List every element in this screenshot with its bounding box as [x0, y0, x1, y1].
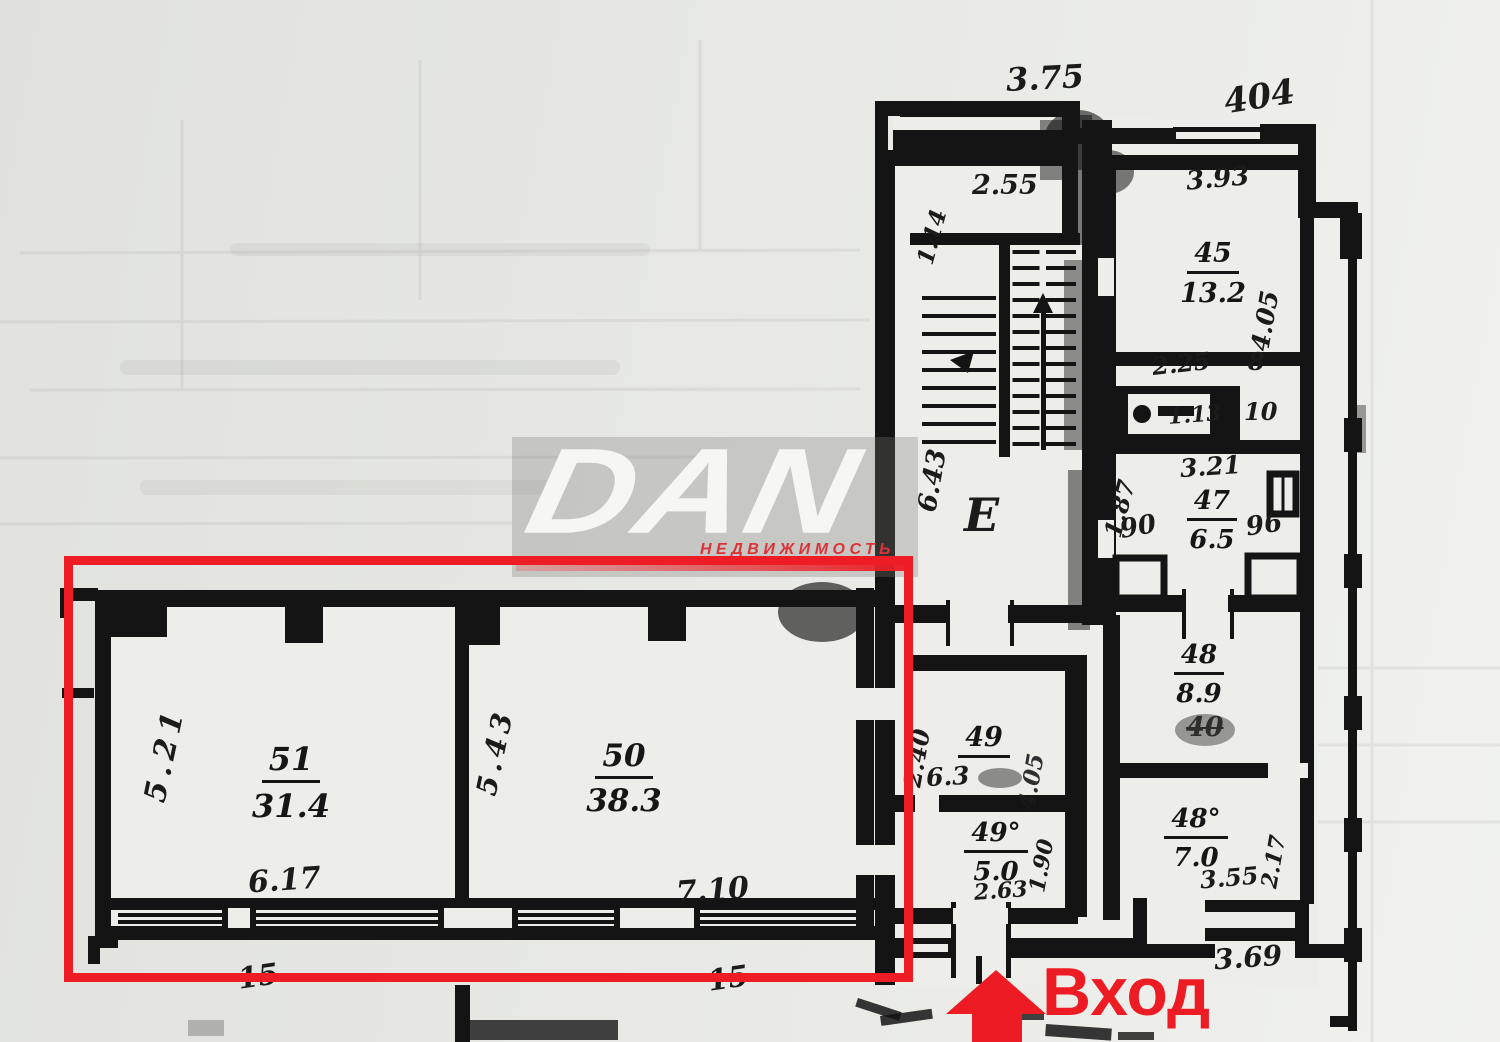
room48a-number: 48° [1164, 804, 1227, 839]
dim-top-width: 3.75 [1005, 60, 1085, 96]
room45-number: 45 [1187, 238, 1239, 274]
room47-number: 47 [1187, 486, 1237, 521]
dim-bottom-right: 3.69 [1213, 942, 1283, 975]
floorplan-scan: 3.75 404 3.69 2.55 1.14 6.43 E 3.93 45 1… [0, 0, 1500, 1042]
room48-number: 48 [1174, 640, 1224, 675]
highlight-rectangle [64, 556, 913, 982]
room49a-number: 49° [964, 818, 1027, 853]
stairwell-letter: E [964, 492, 999, 538]
dim-closet-2: 8 [1248, 350, 1265, 374]
room47-area: 6.5 [1176, 525, 1248, 555]
entrance-arrow-stem [972, 1010, 1022, 1042]
room45-area: 13.2 [1172, 278, 1254, 309]
entrance-arrow-icon [946, 970, 1046, 1014]
house-number: 404 [1222, 75, 1297, 120]
room48-crossed-value: 40 [1186, 714, 1224, 741]
room45-label: 45 13.2 [1172, 238, 1254, 309]
room49-label: 49 [952, 722, 1016, 758]
dim-vestibule-width: 2.55 [972, 172, 1038, 199]
room48-label: 48 8.9 [1164, 640, 1234, 709]
dim-room47-door2: 96 [1244, 510, 1283, 541]
entrance-label: Вход [1042, 958, 1210, 1026]
dim-room47-door1: 90 [1118, 511, 1158, 543]
dim-room45-width: 3.93 [1185, 163, 1250, 194]
room48-area: 8.9 [1164, 679, 1234, 709]
dim-closet-4: 10 [1244, 400, 1277, 424]
dim-closet-3: 1.13 [1167, 402, 1222, 428]
dim-room49a-width: 2.63 [973, 878, 1028, 904]
room49-area: 6.3 [925, 763, 970, 790]
room47-label: 47 6.5 [1176, 486, 1248, 555]
dim-room47-width: 3.21 [1179, 452, 1241, 481]
dim-room48a-width: 3.55 [1199, 863, 1259, 892]
dim-closet-1: 2.25 [1151, 349, 1212, 379]
room49-number: 49 [958, 722, 1010, 758]
